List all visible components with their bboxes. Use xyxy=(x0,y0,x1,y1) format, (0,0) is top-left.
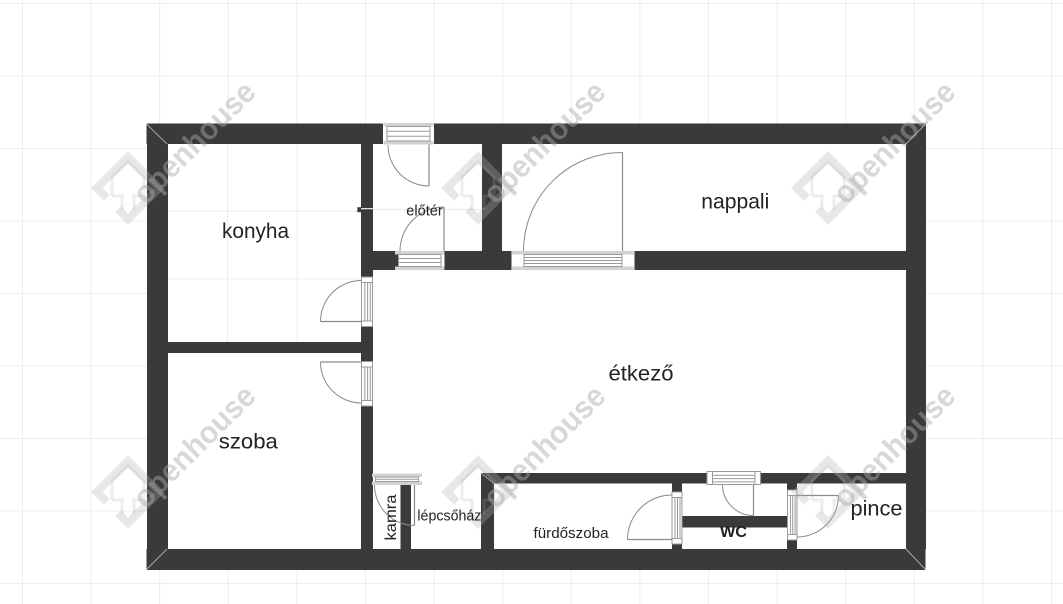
svg-text:WC: WC xyxy=(720,524,747,541)
svg-text:előtér: előtér xyxy=(406,203,443,220)
svg-text:pince: pince xyxy=(851,497,903,520)
svg-text:étkező: étkező xyxy=(609,362,674,385)
svg-text:kamra: kamra xyxy=(383,494,400,540)
svg-text:fürdőszoba: fürdőszoba xyxy=(534,525,610,542)
svg-text:konyha: konyha xyxy=(222,220,289,243)
svg-text:nappali: nappali xyxy=(701,190,769,213)
svg-text:lépcsőház: lépcsőház xyxy=(417,507,481,524)
svg-text:szoba: szoba xyxy=(219,431,278,454)
